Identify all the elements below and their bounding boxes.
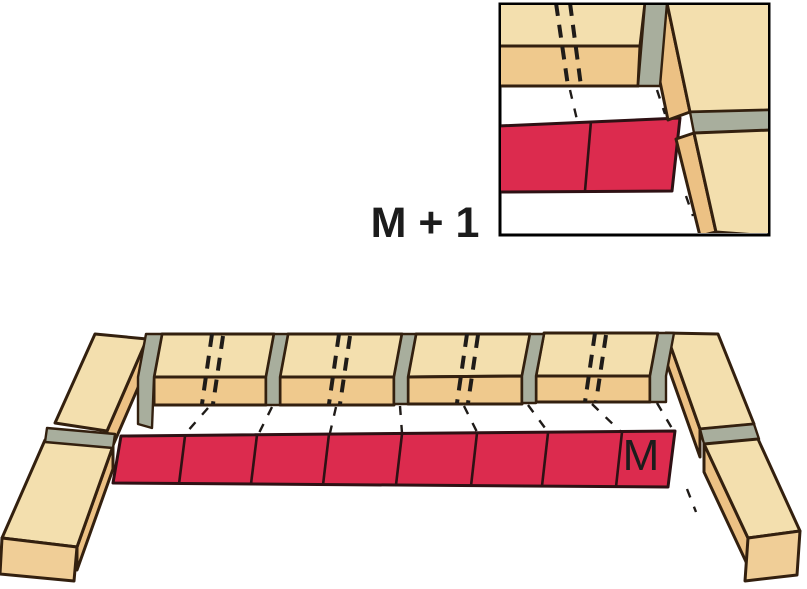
projection-dash bbox=[464, 406, 477, 432]
projection-dash bbox=[657, 403, 673, 430]
course-brick-1-top bbox=[154, 334, 274, 377]
course-brick-2-top bbox=[280, 334, 402, 377]
projection-dash bbox=[330, 407, 336, 433]
course-brick-2-front bbox=[280, 377, 394, 405]
course-brick-3-top bbox=[408, 334, 530, 377]
course-brick-3-front bbox=[408, 376, 522, 404]
projection-dash bbox=[592, 404, 620, 431]
red-gauge-strip: M bbox=[113, 431, 675, 487]
projection-dash bbox=[400, 406, 402, 433]
illustration-canvas: M M + 1 bbox=[0, 0, 807, 589]
projection-dash bbox=[528, 405, 548, 432]
projection-dash bbox=[186, 408, 208, 433]
label-module-plus-one: M + 1 bbox=[371, 199, 480, 247]
masonry-diagram: M M + 1 bbox=[0, 0, 807, 589]
lower-right-brick-end-face bbox=[745, 531, 800, 581]
lower-left-brick-end-face bbox=[0, 538, 77, 581]
course-brick-1-front bbox=[154, 377, 266, 405]
projection-dash bbox=[687, 489, 696, 512]
course-brick-4-top bbox=[536, 333, 658, 376]
label-module-m: M bbox=[623, 431, 660, 480]
lower-left-brick-top-face bbox=[2, 440, 113, 547]
course-brick-4-front bbox=[536, 376, 650, 402]
inset-course-brick-front bbox=[499, 46, 640, 86]
main-illustration: M bbox=[0, 333, 800, 581]
inset-detail bbox=[499, 3, 770, 236]
gauge-strip-face bbox=[113, 431, 675, 487]
right-corner-bricks bbox=[666, 333, 800, 581]
projection-dash bbox=[259, 407, 272, 433]
